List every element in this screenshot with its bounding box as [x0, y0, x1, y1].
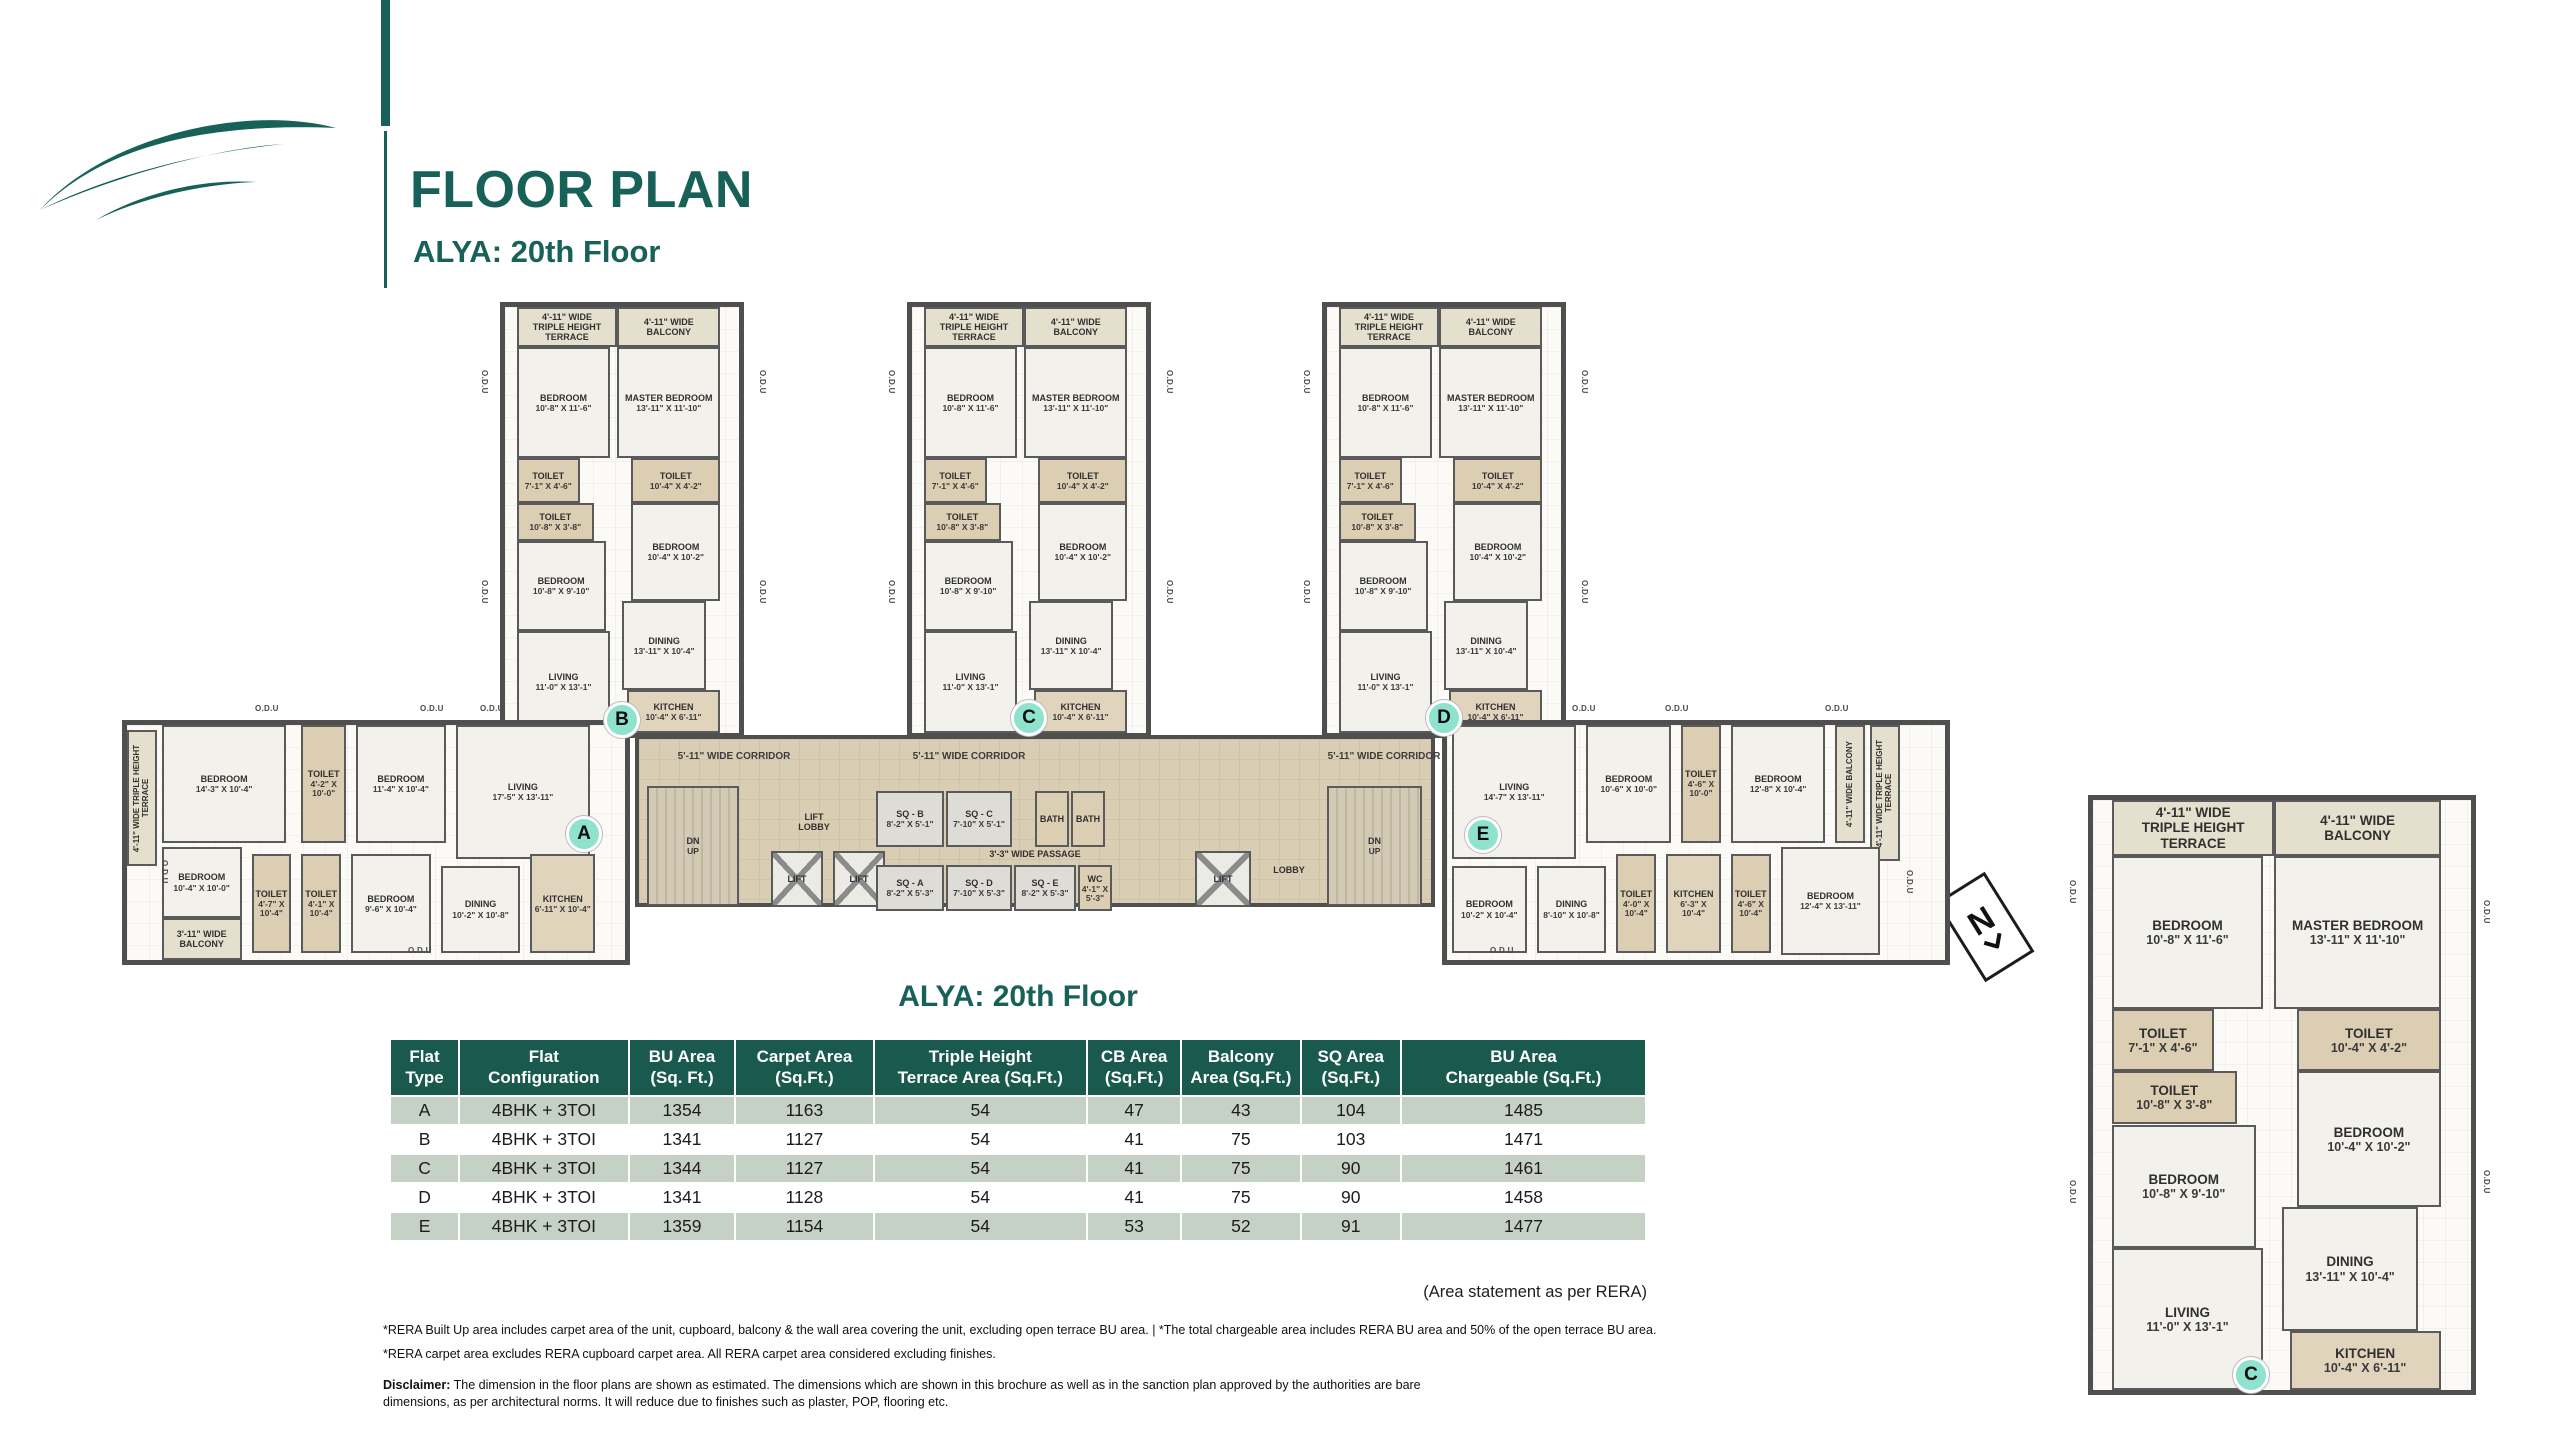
- room-master-bedroom: MASTER BEDROOM13'-11" X 11'-10": [617, 347, 720, 458]
- room-4-11-wide-balcony: 4'-11" WIDE BALCONY: [1439, 307, 1542, 347]
- room-bedroom: BEDROOM10'-8" X 11'-6": [1339, 347, 1433, 458]
- room-dims: 7'-10" X 5'-3": [953, 889, 1005, 898]
- table-cell: 54: [874, 1183, 1088, 1212]
- wc: WC4'-1" X 5'-3": [1078, 865, 1112, 911]
- table-cell: E: [390, 1212, 459, 1241]
- room-dims: 10'-8" X 9'-10": [940, 587, 997, 596]
- table-cell: 91: [1301, 1212, 1401, 1241]
- room-label: 4'-11" WIDE BALCONY: [644, 317, 694, 337]
- room-label: DINING: [1055, 636, 1087, 646]
- room-dims: 13'-11" X 11'-10": [1458, 404, 1523, 413]
- room-4-11-wide-balcony: 4'-11" WIDE BALCONY: [2274, 800, 2440, 856]
- table-column-header: Triple Height Terrace Area (Sq.Ft.): [874, 1039, 1088, 1096]
- room-label: LIVING: [508, 782, 538, 792]
- sq-d: SQ - D7'-10" X 5'-3": [946, 865, 1012, 911]
- room-label: LIVING: [955, 672, 985, 682]
- room-dims: 6'-11" X 10'-4": [535, 905, 591, 914]
- room-dims: 10'-8" X 11'-6": [1357, 404, 1413, 413]
- room-label: 3'-11" WIDE BALCONY: [177, 929, 227, 949]
- room-4-11-wide-triple-height-terrace: 4'-11" WIDE TRIPLE HEIGHT TERRACE: [1870, 725, 1900, 861]
- table-cell: 4BHK + 3TOI: [459, 1212, 629, 1241]
- room-4-11-wide-balcony: 4'-11" WIDE BALCONY: [1835, 725, 1865, 843]
- room-label: BEDROOM: [1466, 899, 1513, 909]
- bath-2: BATH: [1071, 791, 1105, 847]
- table-title: ALYA: 20th Floor: [389, 980, 1647, 1014]
- table-column-header: SQ Area (Sq.Ft.): [1301, 1039, 1401, 1096]
- room-dims: 4'-6" X 10'-0": [1684, 780, 1718, 798]
- passage-label: 3'-3" WIDE PASSAGE: [955, 845, 1115, 863]
- table-cell: 1461: [1401, 1154, 1646, 1183]
- room-dims: 10'-4" X 6'-11": [1052, 713, 1108, 722]
- odu-label: O.D.U: [480, 704, 504, 713]
- room-bedroom: BEDROOM14'-3" X 10'-4": [162, 725, 287, 843]
- room-label: MASTER BEDROOM: [625, 393, 713, 403]
- odu-label: O.D.U: [1302, 370, 1311, 394]
- odu-label: O.D.U: [1580, 580, 1589, 604]
- room-label: LIFT: [788, 874, 807, 884]
- room-bedroom: BEDROOM10'-2" X 10'-4": [1452, 866, 1527, 953]
- room-toilet: TOILET4'-0" X 10'-4": [1616, 854, 1656, 953]
- odu-label: O.D.U: [2482, 900, 2491, 924]
- room-dims: 10'-4" X 10'-2": [648, 553, 705, 562]
- room-bedroom: BEDROOM9'-6" X 10'-4": [351, 854, 431, 953]
- room-label: BEDROOM: [1605, 774, 1652, 784]
- room-dims: 10'-6" X 10'-0": [1601, 785, 1658, 794]
- table-cell: 1344: [629, 1154, 736, 1183]
- room-label: 4'-11" WIDE TRIPLE HEIGHT TERRACE: [2142, 805, 2245, 850]
- room-label: LOBBY: [1273, 865, 1305, 875]
- room-toilet: TOILET10'-4" X 4'-2": [1453, 458, 1542, 503]
- table-cell: 4BHK + 3TOI: [459, 1183, 629, 1212]
- floor-plan-page: { "header": { "title": "FLOOR PLAN", "su…: [0, 0, 2560, 1440]
- room-label: BEDROOM: [1807, 891, 1854, 901]
- table-cell: 1341: [629, 1125, 736, 1154]
- room-bedroom: BEDROOM10'-8" X 9'-10": [517, 541, 606, 630]
- room-toilet: TOILET7'-1" X 4'-6": [517, 458, 580, 503]
- room-toilet: TOILET7'-1" X 4'-6": [2112, 1009, 2214, 1071]
- sq-a: SQ - A8'-2" X 5'-3": [876, 865, 944, 911]
- room-kitchen: KITCHEN10'-4" X 6'-11": [1034, 690, 1128, 733]
- room-dims: 10'-4" X 4'-2": [1057, 482, 1109, 491]
- room-label: 4'-11" WIDE TRIPLE HEIGHT TERRACE: [133, 733, 151, 863]
- room-label: TOILET: [660, 471, 692, 481]
- room-label: SQ - D: [965, 878, 993, 888]
- table-column-header: Flat Configuration: [459, 1039, 629, 1096]
- table-cell: A: [390, 1096, 459, 1125]
- table-cell: 53: [1087, 1212, 1181, 1241]
- odu-label: O.D.U: [758, 370, 767, 394]
- table-column-header: BU Area Chargeable (Sq.Ft.): [1401, 1039, 1646, 1096]
- room-label: KITCHEN: [1475, 702, 1515, 712]
- room-dims: 10'-4" X 10'-2": [1055, 553, 1112, 562]
- room-label: KITCHEN: [543, 894, 583, 904]
- room-dims: 9'-6" X 10'-4": [365, 905, 417, 914]
- unit-wing-a: 4'-11" WIDE TRIPLE HEIGHT TERRACEBEDROOM…: [122, 720, 630, 965]
- room-dims: 11'-0" X 13'-1": [1357, 683, 1413, 692]
- table-cell: D: [390, 1183, 459, 1212]
- room-living: LIVING11'-0" X 13'-1": [924, 631, 1018, 733]
- table-cell: 90: [1301, 1154, 1401, 1183]
- table-cell: 54: [874, 1096, 1088, 1125]
- room-dims: 10'-4" X 6'-11": [645, 713, 701, 722]
- room-label: TOILET: [308, 769, 340, 779]
- room-label: SQ - B: [896, 809, 924, 819]
- room-dims: 10'-2" X 10'-8": [452, 911, 509, 920]
- disclaimer-text: The dimension in the floor plans are sho…: [383, 1378, 1421, 1409]
- room-bedroom: BEDROOM10'-8" X 11'-6": [517, 347, 611, 458]
- room-label: BEDROOM: [2334, 1125, 2405, 1140]
- lift-1: LIFT: [771, 851, 823, 907]
- odu-label: O.D.U: [408, 946, 432, 955]
- table-cell: 1354: [629, 1096, 736, 1125]
- room-label: KITCHEN: [2335, 1346, 2395, 1361]
- lift-3: LIFT: [1195, 851, 1251, 907]
- room-label: BATH: [1040, 814, 1064, 824]
- room-label: TOILET: [532, 471, 564, 481]
- room-dims: 6'-3" X 10'-4": [1669, 900, 1718, 918]
- room-label: LIVING: [548, 672, 578, 682]
- corridor-width-label: 5'-11" WIDE CORRIDOR: [678, 751, 791, 762]
- room-dims: 10'-8" X 11'-6": [942, 404, 998, 413]
- room-dims: 10'-4" X 4'-2": [1472, 482, 1524, 491]
- flat-marker-b: B: [604, 702, 640, 738]
- table-row: D4BHK + 3TOI13411128544175901458: [390, 1183, 1646, 1212]
- room-dims: 11'-0" X 13'-1": [535, 683, 591, 692]
- room-label: TOILET: [1361, 512, 1393, 522]
- table-cell: 75: [1181, 1154, 1300, 1183]
- odu-label: O.D.U: [480, 370, 489, 394]
- staircase-left: DNUP: [647, 786, 739, 906]
- room-label: BEDROOM: [367, 894, 414, 904]
- odu-label: O.D.U: [2068, 1180, 2077, 1204]
- room-dims: 4'-1" X 5'-3": [1081, 885, 1109, 903]
- room-label: DN: [1368, 836, 1381, 846]
- table-cell: 52: [1181, 1212, 1300, 1241]
- room-dims: 13'-11" X 10'-4": [1041, 647, 1102, 656]
- table-row: C4BHK + 3TOI13441127544175901461: [390, 1154, 1646, 1183]
- disclaimer: Disclaimer: The dimension in the floor p…: [383, 1377, 1463, 1411]
- room-dims: 13'-11" X 11'-10": [2310, 934, 2406, 947]
- room-dims: 10'-4" X 4'-2": [650, 482, 702, 491]
- room-dims: 10'-4" X 10'-2": [1470, 553, 1527, 562]
- room-dims: 4'-1" X 10'-4": [304, 900, 338, 918]
- room-4-11-wide-triple-height-terrace: 4'-11" WIDE TRIPLE HEIGHT TERRACE: [2112, 800, 2275, 856]
- table-cell: 1477: [1401, 1212, 1646, 1241]
- room-label: 4'-11" WIDE TRIPLE HEIGHT TERRACE: [533, 312, 602, 342]
- odu-label: O.D.U: [1302, 580, 1311, 604]
- room-label: KITCHEN: [653, 702, 693, 712]
- room-label: TOILET: [1482, 471, 1514, 481]
- room-label: 4'-11" WIDE BALCONY: [2320, 813, 2395, 843]
- room-toilet: TOILET4'-2" X 10'-0": [301, 725, 346, 843]
- room-dims: 11'-4" X 10'-4": [373, 785, 429, 794]
- table-cell: 1341: [629, 1183, 736, 1212]
- room-label: DINING: [465, 899, 497, 909]
- odu-label: O.D.U: [1165, 370, 1174, 394]
- room-label: BEDROOM: [201, 774, 248, 784]
- room-dining: DINING10'-2" X 10'-8": [441, 866, 521, 953]
- room-4-11-wide-triple-height-terrace: 4'-11" WIDE TRIPLE HEIGHT TERRACE: [1339, 307, 1440, 347]
- room-label: BEDROOM: [377, 774, 424, 784]
- table-cell: 41: [1087, 1183, 1181, 1212]
- room-label: TOILET: [2139, 1026, 2187, 1041]
- odu-label: O.D.U: [160, 860, 169, 884]
- table-cell: 1127: [735, 1154, 873, 1183]
- table-cell: 43: [1181, 1096, 1300, 1125]
- room-dims: 10'-8" X 9'-10": [1355, 587, 1412, 596]
- room-4-11-wide-triple-height-terrace: 4'-11" WIDE TRIPLE HEIGHT TERRACE: [127, 730, 157, 866]
- table-cell: 1163: [735, 1096, 873, 1125]
- room-dims: 8'-10" X 10'-8": [1543, 911, 1600, 920]
- room-label: BEDROOM: [947, 393, 994, 403]
- room-label: TOILET: [305, 889, 337, 899]
- room-label: TOILET: [539, 512, 571, 522]
- odu-label: O.D.U: [1572, 704, 1596, 713]
- room-dining: DINING13'-11" X 10'-4": [622, 601, 706, 690]
- room-dims: 10'-8" X 3'-8": [529, 523, 581, 532]
- room-dims: 4'-0" X 10'-4": [1619, 900, 1653, 918]
- room-dims: 10'-8" X 3'-8": [1351, 523, 1403, 532]
- room-label: 4'-11" WIDE BALCONY: [1051, 317, 1101, 337]
- room-bedroom: BEDROOM10'-6" X 10'-0": [1586, 725, 1671, 843]
- unit-wing-e: LIVING14'-7" X 13'-11"BEDROOM10'-6" X 10…: [1442, 720, 1950, 965]
- room-label: BEDROOM: [540, 393, 587, 403]
- corridor-width-label: 5'-11" WIDE CORRIDOR: [1328, 751, 1441, 762]
- table-cell: 41: [1087, 1125, 1181, 1154]
- footnote-bu-area: *RERA Built Up area includes carpet area…: [383, 1323, 1656, 1337]
- room-dims: 8'-2" X 5'-3": [886, 889, 933, 898]
- table-cell: 41: [1087, 1154, 1181, 1183]
- staircase-right: DNUP: [1327, 786, 1422, 906]
- room-label: 4'-11" WIDE TRIPLE HEIGHT TERRACE: [1355, 312, 1424, 342]
- lift-lobby-label: LIFT LOBBY: [767, 801, 861, 843]
- flat-marker-c: C: [2233, 1357, 2269, 1393]
- room-toilet: TOILET7'-1" X 4'-6": [924, 458, 987, 503]
- room-dims: 10'-8" X 9'-10": [533, 587, 590, 596]
- lobby-label: LOBBY: [1257, 859, 1321, 881]
- odu-label: O.D.U: [2482, 1170, 2491, 1194]
- room-bedroom: BEDROOM10'-4" X 10'-2": [1453, 503, 1542, 601]
- table-cell: 4BHK + 3TOI: [459, 1125, 629, 1154]
- room-toilet: TOILET10'-8" X 3'-8": [2112, 1071, 2237, 1124]
- room-dims: 10'-8" X 9'-10": [2142, 1188, 2225, 1201]
- room-dims: 10'-8" X 3'-8": [2136, 1099, 2212, 1112]
- room-kitchen: KITCHEN10'-4" X 6'-11": [627, 690, 721, 733]
- room-4-11-wide-triple-height-terrace: 4'-11" WIDE TRIPLE HEIGHT TERRACE: [924, 307, 1025, 347]
- room-dims: 11'-0" X 13'-1": [942, 683, 998, 692]
- room-label: BEDROOM: [538, 576, 585, 586]
- table-cell: 54: [874, 1212, 1088, 1241]
- room-toilet: TOILET4'-7" X 10'-4": [252, 854, 292, 953]
- odu-label: O.D.U: [1825, 704, 1849, 713]
- unit-tower-c: 4'-11" WIDE TRIPLE HEIGHT TERRACE4'-11" …: [907, 302, 1151, 738]
- room-living: LIVING11'-0" X 13'-1": [517, 631, 611, 733]
- room-toilet: TOILET10'-8" X 3'-8": [924, 503, 1001, 541]
- room-dims: 10'-4" X 4'-2": [2331, 1042, 2407, 1055]
- room-bedroom: BEDROOM10'-4" X 10'-2": [1038, 503, 1127, 601]
- room-dims: 7'-1" X 4'-6": [932, 482, 979, 491]
- table-cell: 1471: [1401, 1125, 1646, 1154]
- table-row: B4BHK + 3TOI134111275441751031471: [390, 1125, 1646, 1154]
- room-label: TOILET: [1620, 889, 1652, 899]
- room-bedroom: BEDROOM10'-4" X 10'-0": [162, 847, 242, 918]
- room-master-bedroom: MASTER BEDROOM13'-11" X 11'-10": [1439, 347, 1542, 458]
- table-cell: 90: [1301, 1183, 1401, 1212]
- table-column-header: BU Area (Sq. Ft.): [629, 1039, 736, 1096]
- room-toilet: TOILET4'-6" X 10'-4": [1731, 854, 1771, 953]
- room-label: SQ - A: [896, 878, 923, 888]
- table-cell: 75: [1181, 1183, 1300, 1212]
- room-dims: 13'-11" X 10'-4": [634, 647, 695, 656]
- table-cell: 104: [1301, 1096, 1401, 1125]
- area-table-wrap: Flat TypeFlat ConfigurationBU Area (Sq. …: [389, 1038, 1647, 1242]
- room-bedroom: BEDROOM12'-8" X 10'-4": [1731, 725, 1826, 843]
- table-column-header: CB Area (Sq.Ft.): [1087, 1039, 1181, 1096]
- footnote-carpet-area: *RERA carpet area excludes RERA cupboard…: [383, 1347, 996, 1361]
- flat-marker-c: C: [1011, 700, 1047, 736]
- room-bedroom: BEDROOM12'-4" X 13'-11": [1781, 847, 1881, 955]
- room-dims: 14'-7" X 13'-11": [1484, 793, 1545, 802]
- odu-label: O.D.U: [2068, 880, 2077, 904]
- table-cell: 1458: [1401, 1183, 1646, 1212]
- room-label: DN: [687, 836, 700, 846]
- room-toilet: TOILET10'-8" X 3'-8": [517, 503, 594, 541]
- room-label: MASTER BEDROOM: [2292, 918, 2423, 933]
- room-master-bedroom: MASTER BEDROOM13'-11" X 11'-10": [1024, 347, 1127, 458]
- room-label: DINING: [1470, 636, 1502, 646]
- room-dims: 10'-2" X 10'-4": [1461, 911, 1518, 920]
- room-dining: DINING13'-11" X 10'-4": [1029, 601, 1113, 690]
- room-dims: 7'-1" X 4'-6": [1347, 482, 1394, 491]
- room-label: BEDROOM: [2152, 918, 2223, 933]
- room-label: TOILET: [2345, 1026, 2393, 1041]
- room-bedroom: BEDROOM11'-4" X 10'-4": [356, 725, 446, 843]
- room-4-11-wide-triple-height-terrace: 4'-11" WIDE TRIPLE HEIGHT TERRACE: [517, 307, 618, 347]
- room-bedroom: BEDROOM10'-8" X 9'-10": [924, 541, 1013, 630]
- odu-label: O.D.U: [255, 704, 279, 713]
- sq-e: SQ - E8'-2" X 5'-3": [1014, 865, 1076, 911]
- odu-label: O.D.U: [887, 370, 896, 394]
- room-label: SQ - E: [1031, 878, 1058, 888]
- room-dims: 12'-8" X 10'-4": [1750, 785, 1807, 794]
- room-label: TOILET: [2150, 1083, 2198, 1098]
- odu-label: O.D.U: [1490, 946, 1514, 955]
- table-cell: 4BHK + 3TOI: [459, 1096, 629, 1125]
- table-row: A4BHK + 3TOI135411635447431041485: [390, 1096, 1646, 1125]
- room-label: BEDROOM: [178, 872, 225, 882]
- room-dims: 10'-4" X 10'-2": [2327, 1141, 2410, 1154]
- central-corridor: 5'-11" WIDE CORRIDOR5'-11" WIDE CORRIDOR…: [635, 735, 1435, 907]
- room-label: BEDROOM: [1360, 576, 1407, 586]
- odu-label: O.D.U: [887, 580, 896, 604]
- room-label: LIFT: [850, 874, 869, 884]
- room-bedroom: BEDROOM10'-8" X 9'-10": [1339, 541, 1428, 630]
- room-dims: 13'-11" X 10'-4": [2305, 1271, 2394, 1284]
- room-toilet: TOILET7'-1" X 4'-6": [1339, 458, 1402, 503]
- rera-note: (Area statement as per RERA): [389, 1283, 1647, 1302]
- room-dims: 13'-11" X 11'-10": [1043, 404, 1108, 413]
- room-label: TOILET: [1685, 769, 1717, 779]
- room-dims: 17'-5" X 13'-11": [493, 793, 554, 802]
- room-dims: 13'-11" X 10'-4": [1456, 647, 1517, 656]
- room-4-11-wide-balcony: 4'-11" WIDE BALCONY: [617, 307, 720, 347]
- odu-label: O.D.U: [420, 704, 444, 713]
- table-row: E4BHK + 3TOI13591154545352911477: [390, 1212, 1646, 1241]
- room-dims: 10'-8" X 3'-8": [936, 523, 988, 532]
- table-cell: C: [390, 1154, 459, 1183]
- room-kitchen: KITCHEN6'-11" X 10'-4": [530, 854, 595, 953]
- unit-tower-b: 4'-11" WIDE TRIPLE HEIGHT TERRACE4'-11" …: [500, 302, 744, 738]
- room-label: 4'-11" WIDE TRIPLE HEIGHT TERRACE: [1876, 728, 1894, 858]
- room-bedroom: BEDROOM10'-8" X 11'-6": [2112, 856, 2263, 1009]
- room-dims: 7'-1" X 4'-6": [2128, 1042, 2197, 1055]
- table-cell: 1359: [629, 1212, 736, 1241]
- odu-label: O.D.U: [1905, 870, 1914, 894]
- table-cell: 47: [1087, 1096, 1181, 1125]
- room-label: MASTER BEDROOM: [1032, 393, 1120, 403]
- room-label: 4'-11" WIDE BALCONY: [1466, 317, 1516, 337]
- table-column-header: Carpet Area (Sq.Ft.): [735, 1039, 873, 1096]
- room-label: LIVING: [1499, 782, 1529, 792]
- room-bedroom: BEDROOM10'-4" X 10'-2": [2297, 1071, 2441, 1207]
- room-label: BEDROOM: [2148, 1172, 2219, 1187]
- room-dims: UP: [1369, 847, 1381, 856]
- room-dims: 11'-0" X 13'-1": [2146, 1321, 2228, 1334]
- room-label: 4'-11" WIDE BALCONY: [1846, 741, 1855, 827]
- room-label: KITCHEN: [1060, 702, 1100, 712]
- odu-label: O.D.U: [1165, 580, 1174, 604]
- room-master-bedroom: MASTER BEDROOM13'-11" X 11'-10": [2274, 856, 2440, 1009]
- room-label: BEDROOM: [945, 576, 992, 586]
- room-dims: 8'-2" X 5'-3": [1021, 889, 1068, 898]
- room-label: DINING: [2326, 1254, 2373, 1269]
- room-dims: 4'-6" X 10'-4": [1734, 900, 1768, 918]
- table-cell: 54: [874, 1154, 1088, 1183]
- room-dims: 4'-2" X 10'-0": [304, 780, 343, 798]
- flat-marker-e: E: [1465, 817, 1501, 853]
- room-dims: 10'-4" X 10'-0": [173, 884, 230, 893]
- table-cell: 54: [874, 1125, 1088, 1154]
- room-dining: DINING8'-10" X 10'-8": [1537, 866, 1607, 953]
- room-toilet: TOILET4'-1" X 10'-4": [301, 854, 341, 953]
- room-label: LIFT: [1214, 874, 1233, 884]
- table-cell: 1154: [735, 1212, 873, 1241]
- room-label: KITCHEN: [1673, 889, 1713, 899]
- room-dims: 10'-8" X 11'-6": [2146, 934, 2228, 947]
- room-label: LIVING: [1370, 672, 1400, 682]
- room-label: SQ - C: [965, 809, 993, 819]
- room-label: TOILET: [939, 471, 971, 481]
- table-cell: 1485: [1401, 1096, 1646, 1125]
- table-cell: 1127: [735, 1125, 873, 1154]
- room-label: 4'-11" WIDE TRIPLE HEIGHT TERRACE: [940, 312, 1009, 342]
- odu-label: O.D.U: [1580, 370, 1589, 394]
- table-cell: 103: [1301, 1125, 1401, 1154]
- room-dining: DINING13'-11" X 10'-4": [1444, 601, 1528, 690]
- room-dims: 14'-3" X 10'-4": [196, 785, 253, 794]
- room-label: DINING: [648, 636, 680, 646]
- room-toilet: TOILET10'-8" X 3'-8": [1339, 503, 1416, 541]
- north-compass: N: [1936, 872, 2035, 982]
- room-label: TOILET: [1354, 471, 1386, 481]
- room-4-11-wide-balcony: 4'-11" WIDE BALCONY: [1024, 307, 1127, 347]
- room-dims: UP: [687, 847, 699, 856]
- table-cell: 4BHK + 3TOI: [459, 1154, 629, 1183]
- sq-b: SQ - B8'-2" X 5'-1": [876, 791, 944, 847]
- room-label: TOILET: [1735, 889, 1767, 899]
- area-statement-table: Flat TypeFlat ConfigurationBU Area (Sq. …: [389, 1038, 1647, 1242]
- room-dims: 10'-8" X 11'-6": [535, 404, 591, 413]
